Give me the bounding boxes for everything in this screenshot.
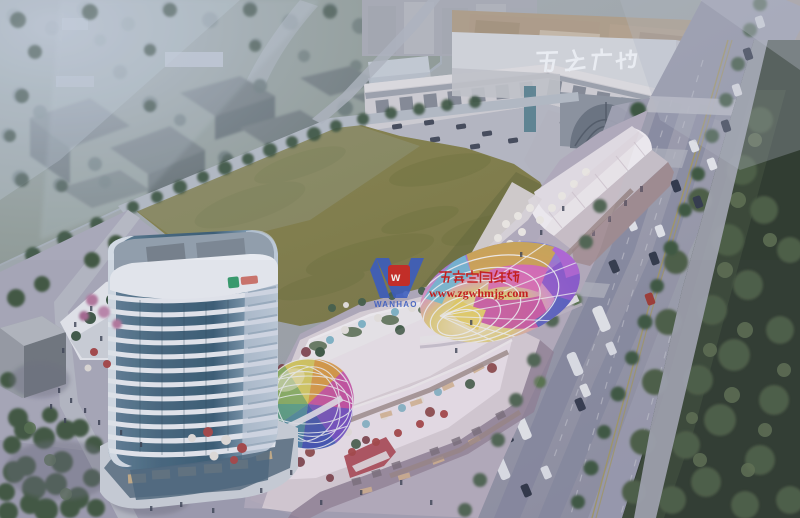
svg-text:www.zgwhmjg.com: www.zgwhmjg.com [429,286,528,300]
svg-text:w: w [390,270,401,284]
svg-text:WANHAO: WANHAO [374,300,418,309]
